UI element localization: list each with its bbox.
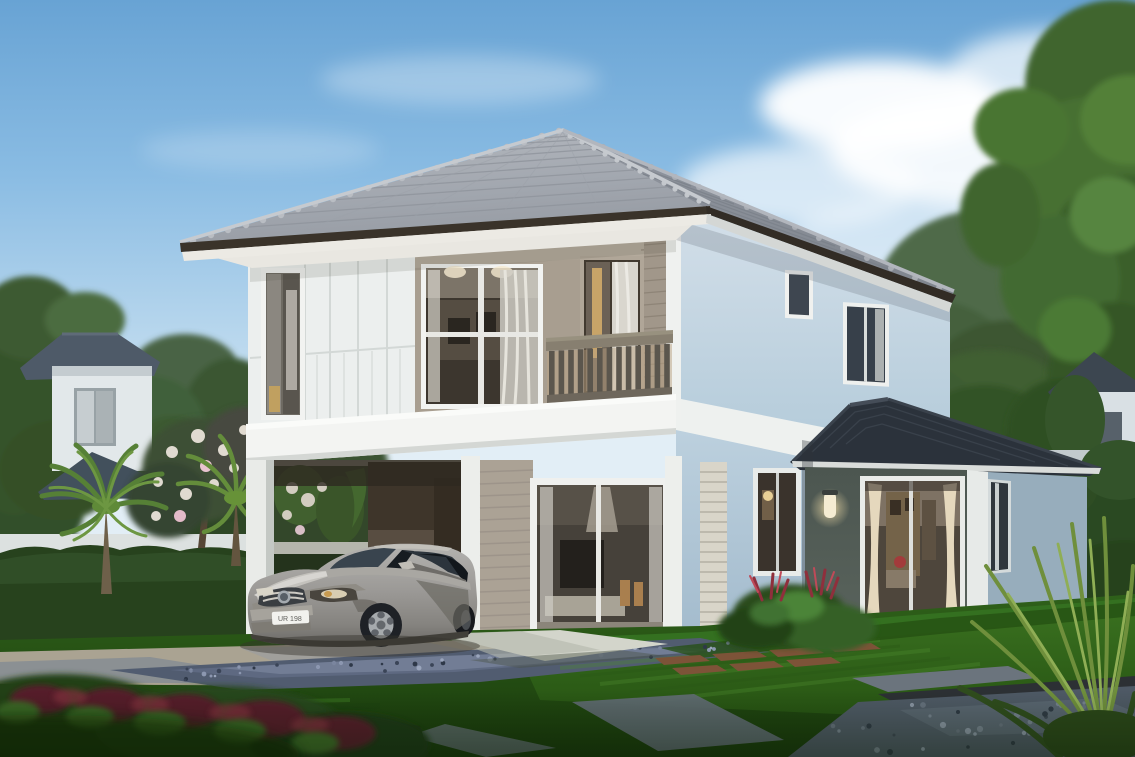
svg-text:UR 198: UR 198 [278, 616, 302, 623]
